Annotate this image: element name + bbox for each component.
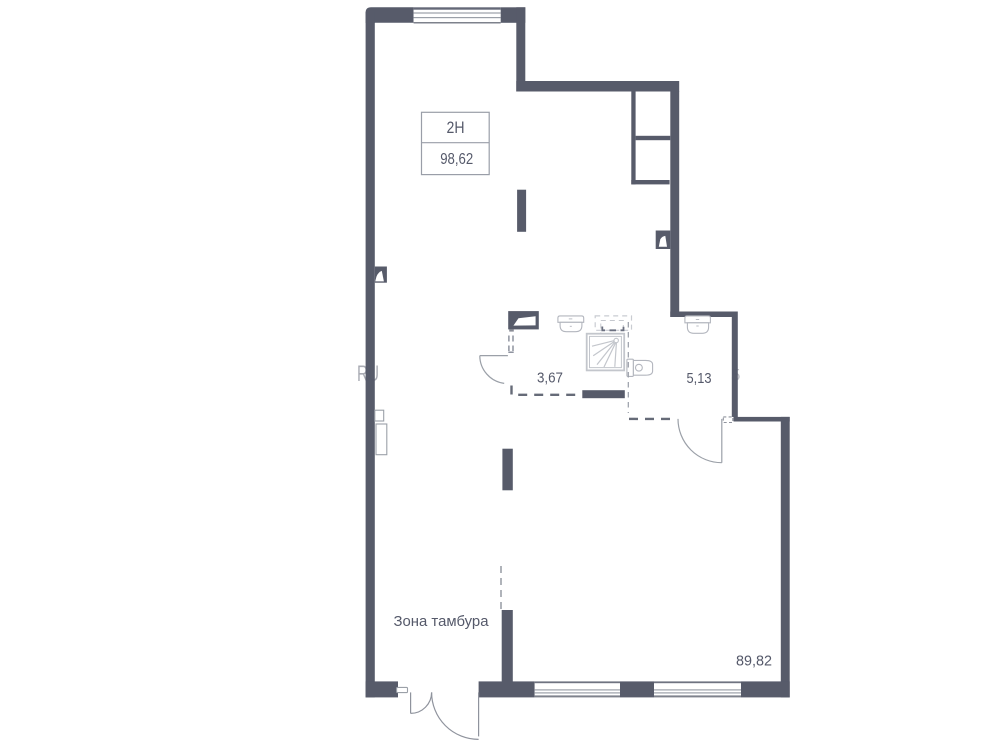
svg-text:RU: RU	[357, 361, 379, 386]
svg-text:98,62: 98,62	[440, 151, 473, 168]
svg-text:5,13: 5,13	[687, 371, 712, 387]
svg-text:2Н: 2Н	[447, 119, 465, 137]
svg-text:Зона тамбура: Зона тамбура	[394, 613, 490, 630]
svg-text:5: 5	[731, 366, 740, 385]
svg-text:89,82: 89,82	[736, 653, 772, 670]
svg-text:3,67: 3,67	[537, 370, 563, 386]
